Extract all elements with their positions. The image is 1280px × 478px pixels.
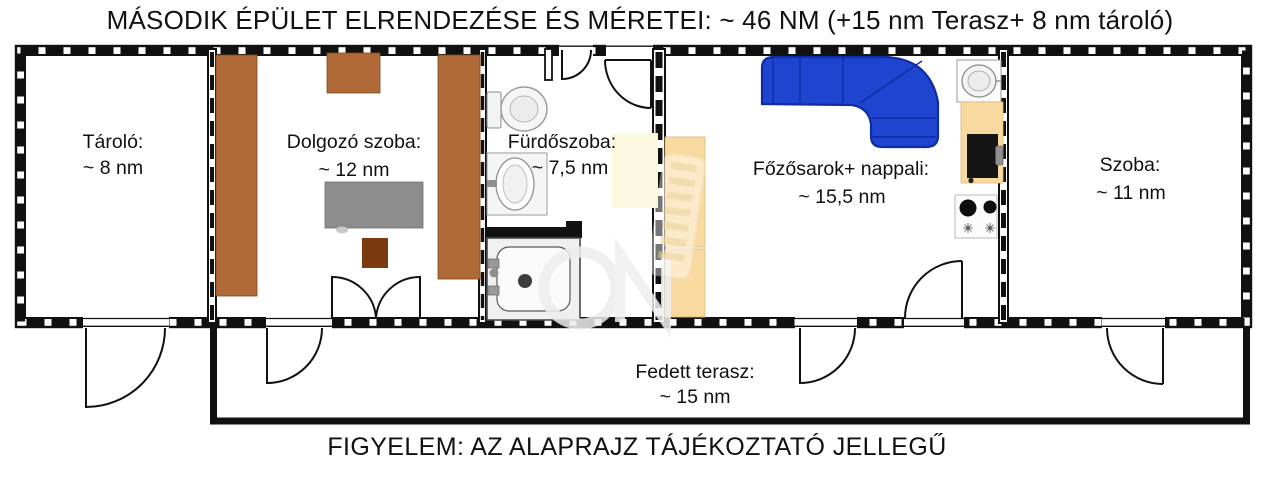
label-bathroom-area: ~ 7,5 nm: [532, 157, 608, 179]
kitchen-terrace-door: [800, 328, 855, 383]
label-storage-name: Tároló:: [83, 131, 144, 153]
storage-entry-door: [86, 328, 165, 407]
floor-plan-page: MÁSODIK ÉPÜLET ELRENDEZÉSE ÉS MÉRETEI: ~…: [0, 0, 1280, 478]
desk: [325, 182, 423, 228]
label-storage-area: ~ 8 nm: [83, 157, 143, 179]
corner-sofa: [762, 57, 938, 147]
floor-plan-drawing: MÁSODIK ÉPÜLET ELRENDEZÉSE ÉS MÉRETEI: ~…: [0, 0, 1280, 478]
label-terrace-name: Fedett terasz:: [635, 361, 754, 383]
kitchen-interior-door: [905, 261, 962, 318]
cabinet-top: [327, 53, 380, 93]
stove-oven: [967, 134, 998, 178]
shower-partition-wall: [486, 227, 580, 238]
label-terrace-area: ~ 15 nm: [659, 386, 730, 408]
chair: [362, 238, 388, 268]
toilet-tank: [487, 92, 501, 128]
label-bedroom-name: Szoba:: [1100, 154, 1161, 176]
shower-drain: [518, 274, 532, 288]
bathroom-mat: [612, 133, 658, 208]
bedroom-terrace-door: [1107, 328, 1163, 384]
bathroom-fixtures: [487, 87, 658, 320]
workroom-terrace-door: [267, 328, 322, 383]
workroom-double-door: [332, 277, 420, 318]
label-kitchen-area: ~ 15,5 nm: [798, 186, 885, 208]
plan-title: MÁSODIK ÉPÜLET ELRENDEZÉSE ÉS MÉRETEI: ~…: [107, 5, 1174, 35]
disclaimer-text: FIGYELEM: AZ ALAPRAJZ TÁJÉKOZTATÓ JELLEG…: [327, 432, 946, 461]
label-bathroom-name: Fürdőszoba:: [508, 131, 616, 153]
label-workroom-name: Dolgozó szoba:: [287, 131, 421, 153]
bathroom-entry-door: [605, 60, 651, 108]
label-bedroom-area: ~ 11 nm: [1096, 182, 1166, 204]
bookshelf-left: [216, 55, 257, 296]
label-workroom-area: ~ 12 nm: [318, 159, 389, 181]
bookshelf-right: [438, 55, 480, 279]
label-kitchen-name: Főzősarok+ nappali:: [753, 158, 929, 180]
